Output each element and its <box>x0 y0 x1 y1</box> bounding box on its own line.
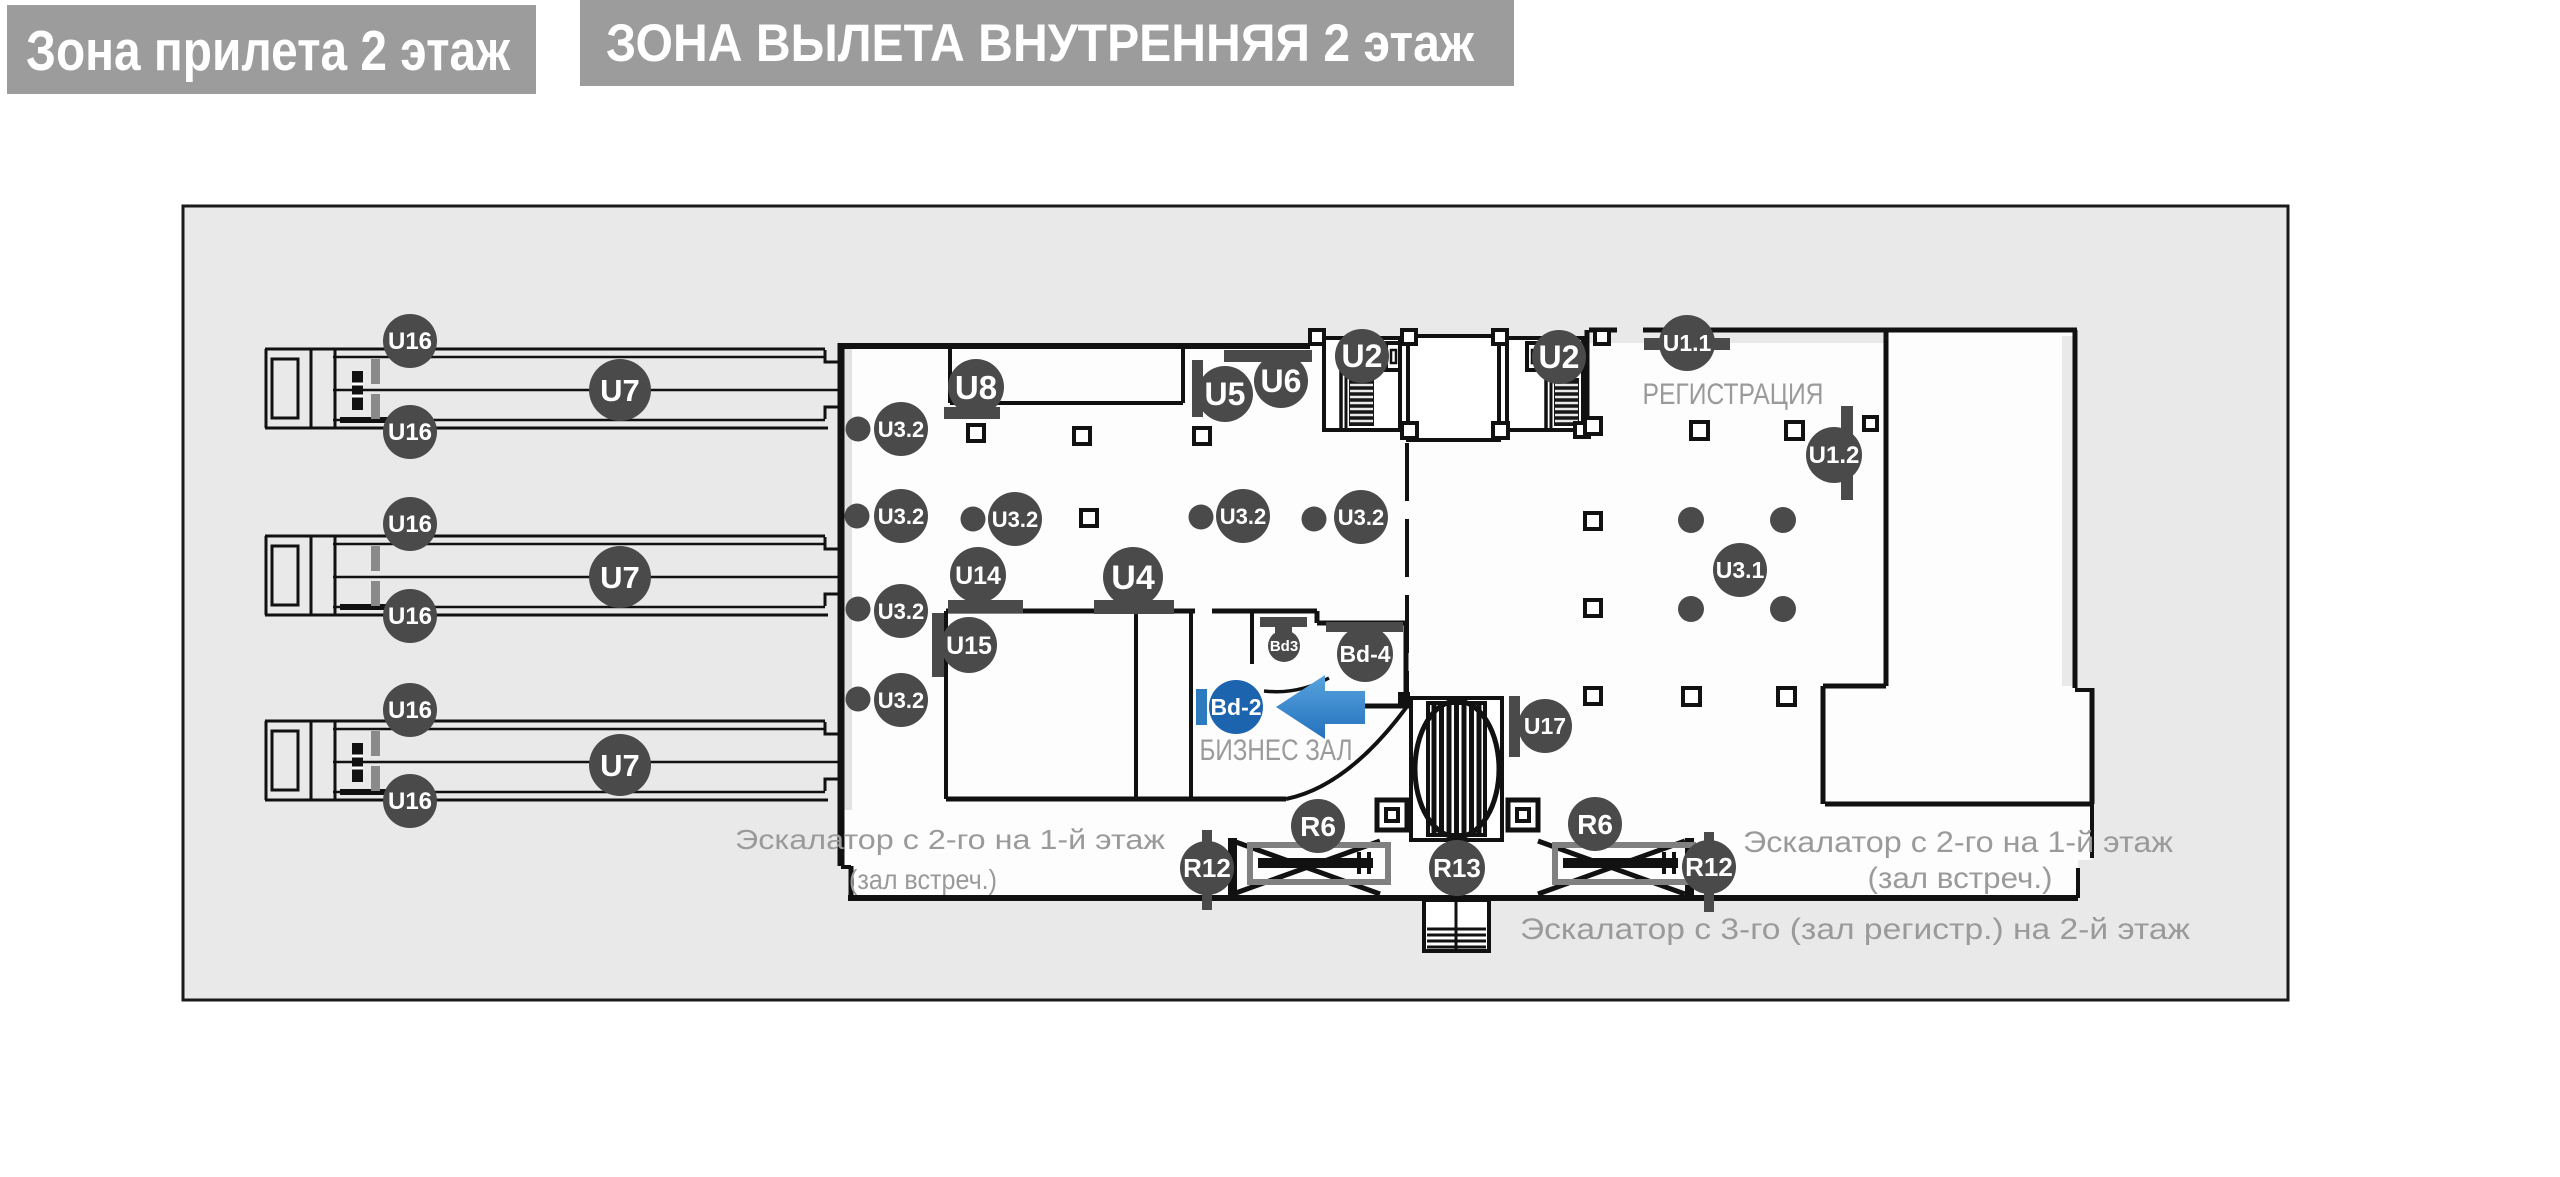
svg-text:U3.2: U3.2 <box>878 417 924 442</box>
svg-text:U16: U16 <box>388 788 432 815</box>
svg-text:БИЗНЕС ЗАЛ: БИЗНЕС ЗАЛ <box>1200 734 1353 767</box>
svg-text:R6: R6 <box>1300 811 1336 842</box>
svg-text:U8: U8 <box>955 369 997 406</box>
svg-text:Bd-2: Bd-2 <box>1210 694 1261 720</box>
svg-text:U1.2: U1.2 <box>1809 442 1860 469</box>
svg-text:U16: U16 <box>388 697 432 724</box>
svg-text:U3.1: U3.1 <box>1716 557 1765 583</box>
svg-text:(зал встреч.): (зал встреч.) <box>1868 862 2053 895</box>
svg-text:U3.2: U3.2 <box>1220 504 1266 529</box>
svg-text:U4: U4 <box>1111 559 1155 597</box>
svg-text:Bd3: Bd3 <box>1270 638 1298 655</box>
svg-text:U6: U6 <box>1261 363 1302 399</box>
svg-text:U1.1: U1.1 <box>1663 330 1712 356</box>
svg-text:U3.2: U3.2 <box>878 504 924 529</box>
svg-text:R12: R12 <box>1685 852 1733 882</box>
svg-text:U5: U5 <box>1205 376 1246 412</box>
svg-text:U16: U16 <box>388 603 432 630</box>
svg-text:РЕГИСТРАЦИЯ: РЕГИСТРАЦИЯ <box>1643 378 1824 411</box>
svg-text:U17: U17 <box>1524 713 1566 739</box>
svg-text:ЗОНА ВЫЛЕТА ВНУТРЕННЯЯ 2 этаж: ЗОНА ВЫЛЕТА ВНУТРЕННЯЯ 2 этаж <box>606 14 1475 73</box>
svg-text:Эскалатор с 2-го на 1-й этаж: Эскалатор с 2-го на 1-й этаж <box>735 824 1165 855</box>
svg-text:Эскалатор с 3-го (зал регистр.: Эскалатор с 3-го (зал регистр.) на 2-й э… <box>1520 913 2190 946</box>
svg-text:U16: U16 <box>388 419 432 446</box>
svg-text:U14: U14 <box>955 562 1001 590</box>
svg-text:U7: U7 <box>600 373 640 408</box>
svg-text:Эскалатор с 2-го на 1-й этаж: Эскалатор с 2-го на 1-й этаж <box>1743 826 2173 859</box>
svg-text:Bd-4: Bd-4 <box>1339 641 1390 667</box>
svg-text:U3.2: U3.2 <box>992 507 1038 532</box>
svg-text:U3.2: U3.2 <box>878 688 924 713</box>
svg-text:Зона прилета 2 этаж: Зона прилета 2 этаж <box>26 19 510 83</box>
svg-text:(зал встреч.): (зал встреч.) <box>849 864 997 895</box>
svg-text:R13: R13 <box>1433 853 1481 883</box>
svg-text:U7: U7 <box>600 560 640 595</box>
svg-text:U3.2: U3.2 <box>1338 505 1384 530</box>
svg-text:U3.2: U3.2 <box>878 599 924 624</box>
svg-text:R12: R12 <box>1183 853 1231 883</box>
svg-text:U2: U2 <box>1342 338 1383 374</box>
svg-text:U7: U7 <box>600 748 640 783</box>
svg-text:U15: U15 <box>946 632 992 660</box>
svg-text:U16: U16 <box>388 511 432 538</box>
svg-text:U2: U2 <box>1539 339 1580 375</box>
svg-text:U16: U16 <box>388 328 432 355</box>
svg-text:R6: R6 <box>1577 809 1613 840</box>
